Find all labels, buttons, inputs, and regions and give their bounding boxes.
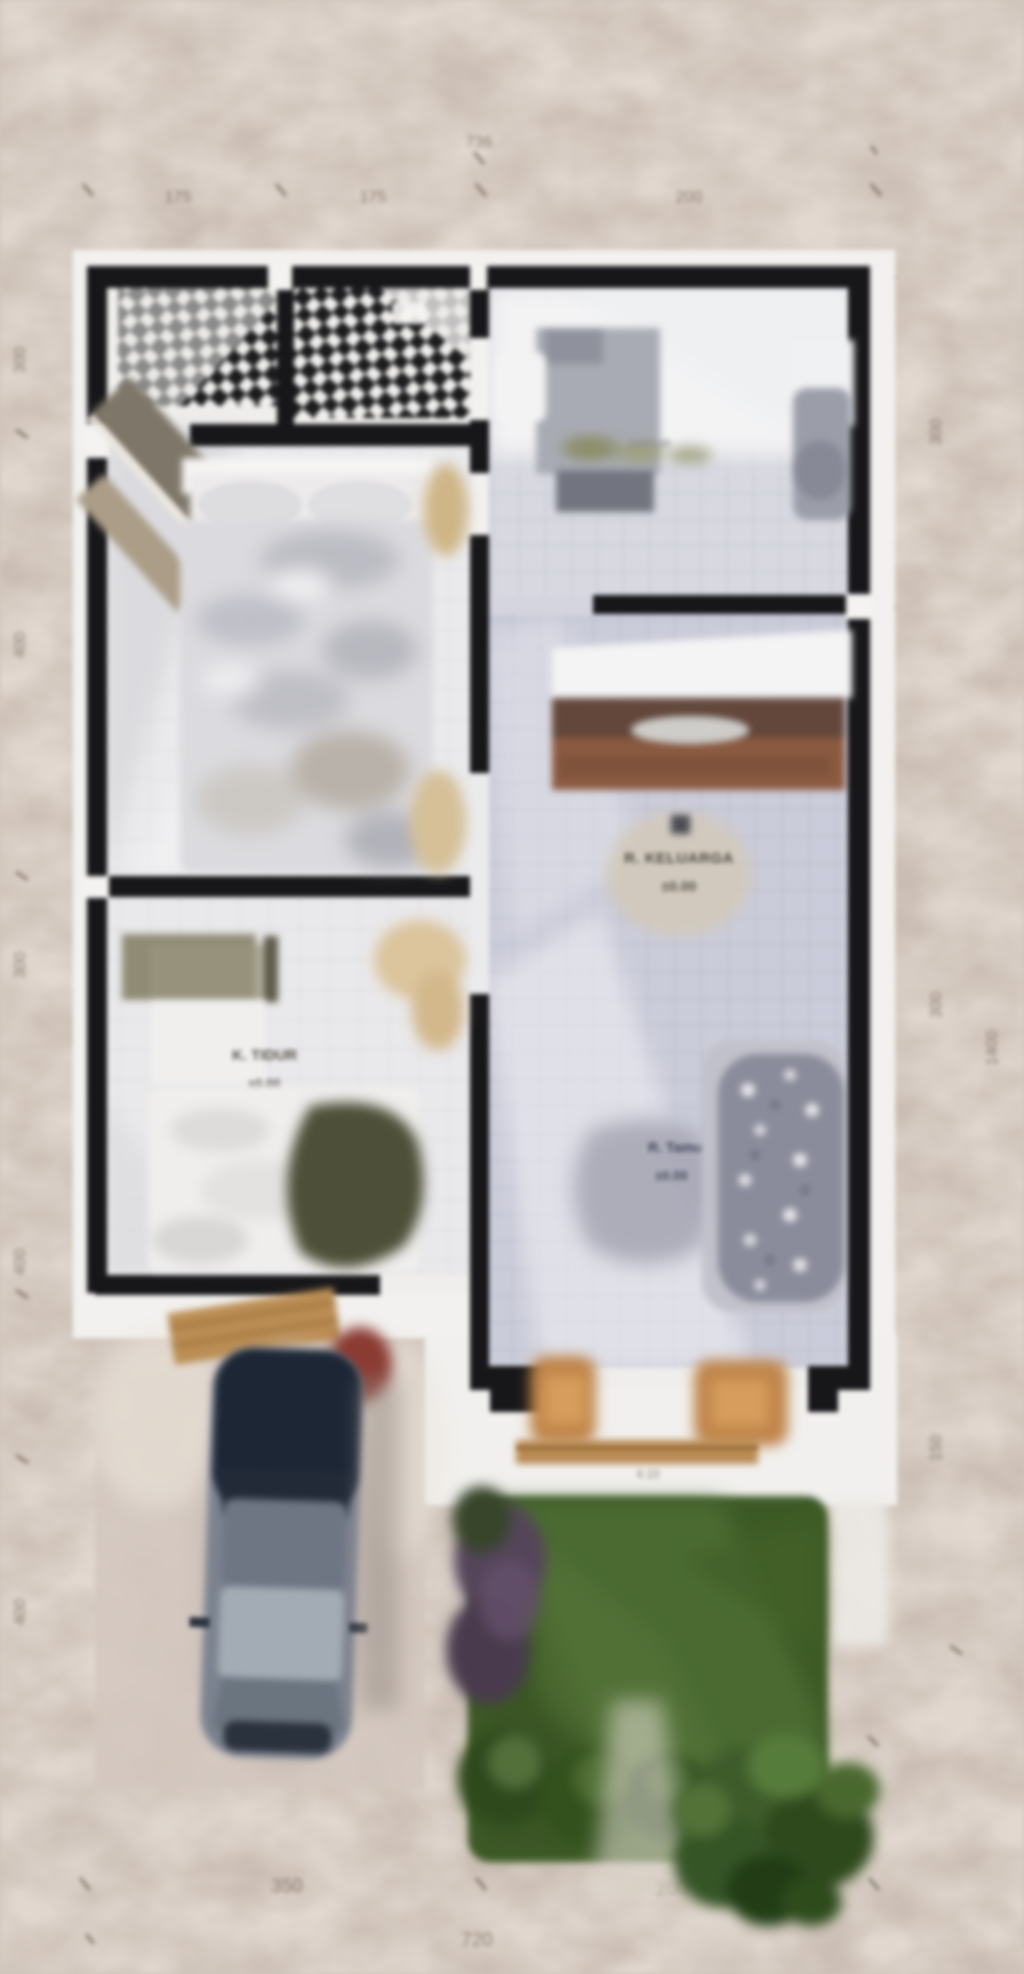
svg-text:1400: 1400 (984, 1030, 1001, 1066)
svg-text:400: 400 (12, 632, 29, 659)
svg-text:R. Tamu: R. Tamu (648, 1139, 702, 1155)
svg-text:DAPUR: DAPUR (629, 437, 671, 451)
svg-text:4.10: 4.10 (636, 1467, 660, 1481)
svg-text:300: 300 (928, 419, 945, 446)
svg-text:350: 350 (271, 1876, 303, 1897)
svg-text:300: 300 (12, 347, 29, 374)
svg-text:300: 300 (12, 952, 29, 979)
svg-text:720: 720 (461, 1930, 493, 1951)
svg-text:736: 736 (466, 134, 493, 151)
svg-text:200: 200 (676, 189, 703, 206)
svg-text:150: 150 (928, 1435, 945, 1462)
svg-text:400: 400 (12, 1599, 29, 1626)
svg-text:300: 300 (928, 992, 945, 1019)
svg-text:±0.00: ±0.00 (655, 1168, 687, 1183)
svg-text:K. TIDUR: K. TIDUR (232, 1047, 297, 1064)
svg-text:±0.00: ±0.00 (662, 878, 697, 894)
svg-text:400: 400 (12, 1249, 29, 1276)
svg-text:175: 175 (360, 189, 387, 206)
svg-text:R. KELUARGA: R. KELUARGA (624, 850, 734, 867)
svg-text:175: 175 (165, 189, 192, 206)
